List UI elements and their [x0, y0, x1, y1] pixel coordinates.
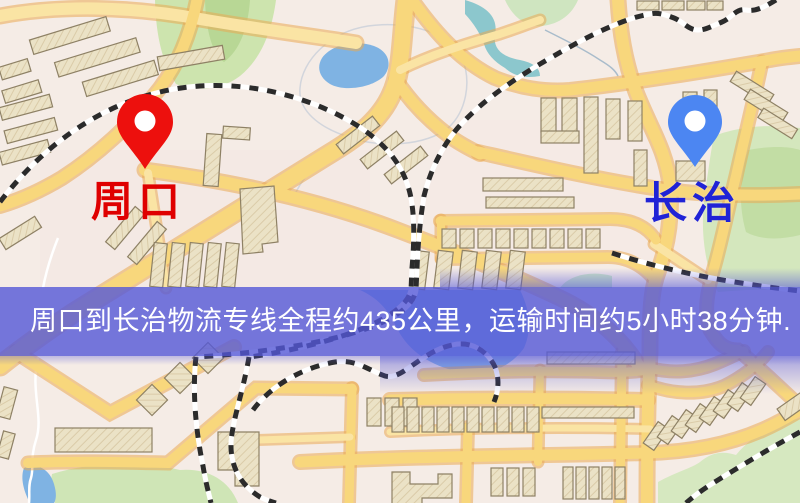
origin-city-label: 周口	[91, 181, 185, 223]
destination-city-label: 长治	[644, 183, 740, 226]
origin-pin-hole	[135, 111, 156, 132]
base-map	[0, 0, 800, 503]
route-info-text: 周口到长治物流专线全程约435公里，运输时间约5小时38分钟.	[30, 287, 791, 356]
map-canvas[interactable]: 周口 长治 周口到长治物流专线全程约435公里，运输时间约5小时38分钟.	[0, 0, 800, 503]
route-info-banner: 周口到长治物流专线全程约435公里，运输时间约5小时38分钟.	[0, 287, 800, 356]
destination-pin-hole	[685, 111, 706, 132]
